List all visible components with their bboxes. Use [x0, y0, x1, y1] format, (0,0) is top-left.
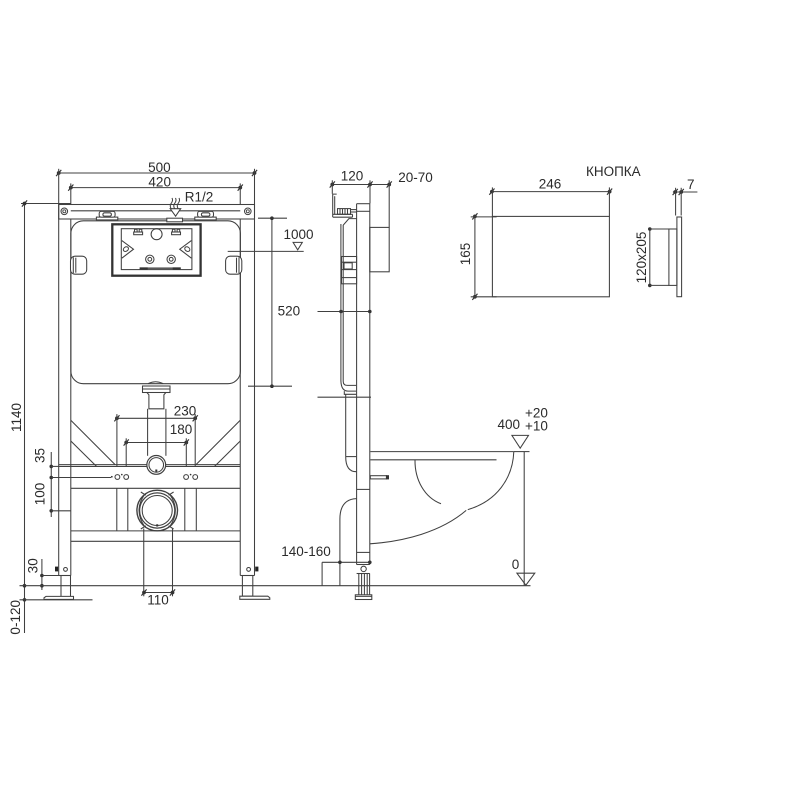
svg-text:400: 400 — [498, 417, 521, 432]
svg-text:110: 110 — [147, 592, 169, 607]
svg-text:230: 230 — [174, 404, 197, 419]
svg-text:30: 30 — [25, 558, 40, 573]
svg-text:0-120: 0-120 — [8, 600, 23, 635]
svg-text:520: 520 — [278, 304, 301, 319]
svg-text:+10: +10 — [525, 419, 548, 434]
svg-text:R1/2: R1/2 — [185, 190, 214, 205]
svg-text:180: 180 — [170, 422, 193, 437]
svg-text:7: 7 — [687, 177, 695, 192]
svg-text:165: 165 — [458, 243, 473, 266]
svg-text:100: 100 — [33, 483, 48, 506]
svg-text:0: 0 — [512, 557, 520, 572]
svg-text:246: 246 — [539, 177, 562, 192]
svg-text:1000: 1000 — [283, 227, 313, 242]
svg-text:140-160: 140-160 — [281, 544, 331, 559]
svg-text:120: 120 — [341, 169, 364, 184]
svg-text:120x205: 120x205 — [634, 232, 649, 284]
svg-text:20-70: 20-70 — [398, 170, 433, 185]
svg-text:500: 500 — [148, 160, 171, 175]
svg-text:КНОПКА: КНОПКА — [586, 164, 641, 179]
svg-text:420: 420 — [148, 174, 171, 189]
svg-text:35: 35 — [33, 448, 48, 463]
svg-text:1140: 1140 — [9, 403, 24, 432]
